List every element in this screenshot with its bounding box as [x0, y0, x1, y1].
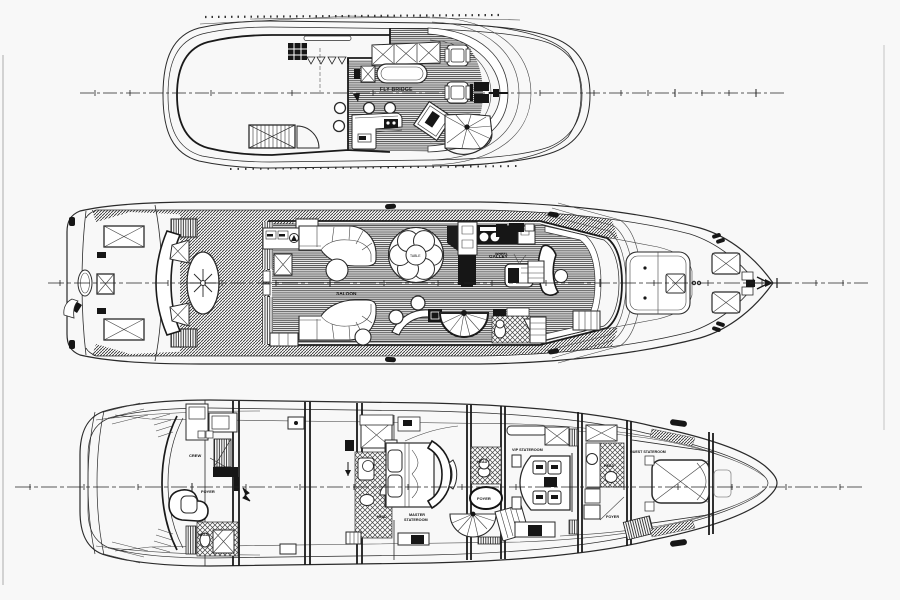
svg-text:STATEROOM: STATEROOM: [404, 518, 428, 522]
svg-text:SALOON: SALOON: [336, 291, 357, 297]
svg-text:VIP STATEROOM: VIP STATEROOM: [512, 448, 543, 452]
svg-text:HEAD: HEAD: [477, 460, 488, 464]
svg-text:HEAD: HEAD: [377, 515, 387, 519]
svg-text:FOYER: FOYER: [201, 489, 215, 494]
svg-text:GUEST STATEROOM: GUEST STATEROOM: [630, 450, 666, 454]
svg-text:MASTER: MASTER: [409, 513, 425, 517]
svg-text:TABLE: TABLE: [410, 254, 421, 258]
svg-text:HEAD: HEAD: [198, 533, 209, 537]
svg-text:FLY BRIDGE: FLY BRIDGE: [380, 87, 413, 93]
svg-text:HEAD: HEAD: [604, 464, 615, 468]
svg-text:WHEEL: WHEEL: [495, 252, 509, 256]
svg-text:CREW: CREW: [189, 453, 201, 458]
svg-text:FOYER: FOYER: [477, 496, 491, 501]
svg-text:FOYER: FOYER: [606, 515, 619, 519]
